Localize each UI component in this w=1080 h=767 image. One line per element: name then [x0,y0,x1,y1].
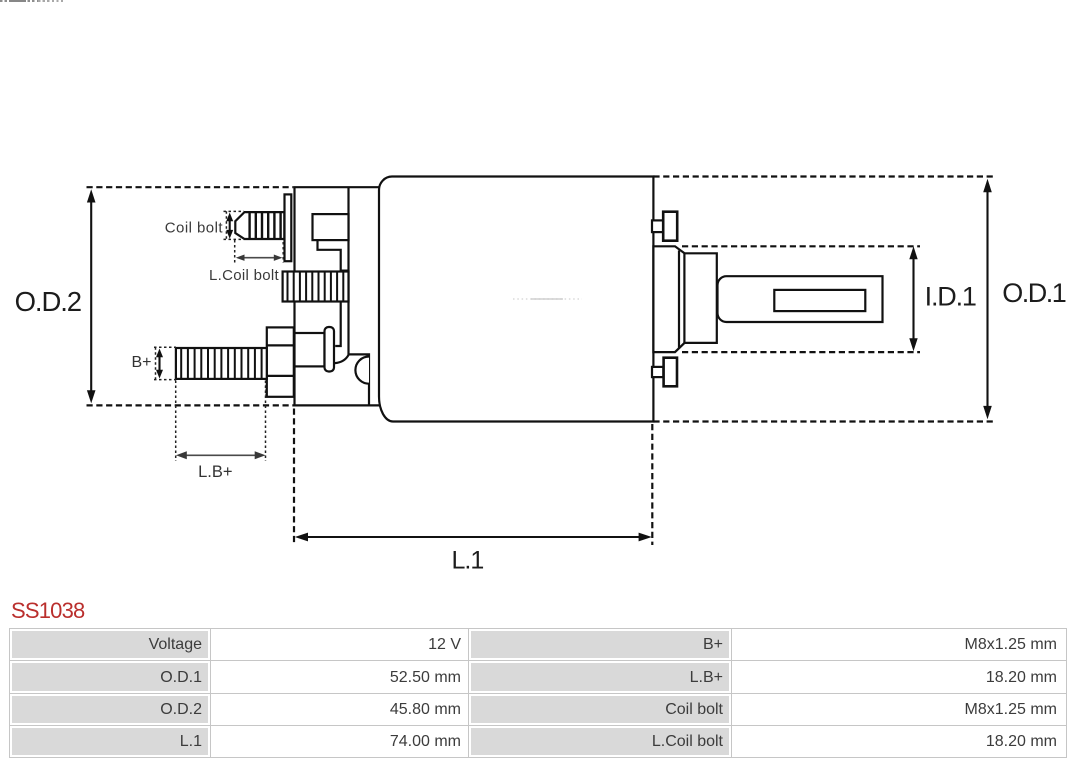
svg-text:O.D.1: O.D.1 [1002,278,1066,308]
svg-text:Coil bolt: Coil bolt [165,220,224,237]
svg-text:I.D.1: I.D.1 [925,282,976,312]
svg-text:O.D.2: O.D.2 [15,286,81,317]
svg-text:L.B+: L.B+ [198,463,232,481]
svg-text:B+: B+ [131,354,151,371]
svg-text:L.1: L.1 [452,547,484,575]
svg-text:L.Coil bolt: L.Coil bolt [209,267,280,284]
